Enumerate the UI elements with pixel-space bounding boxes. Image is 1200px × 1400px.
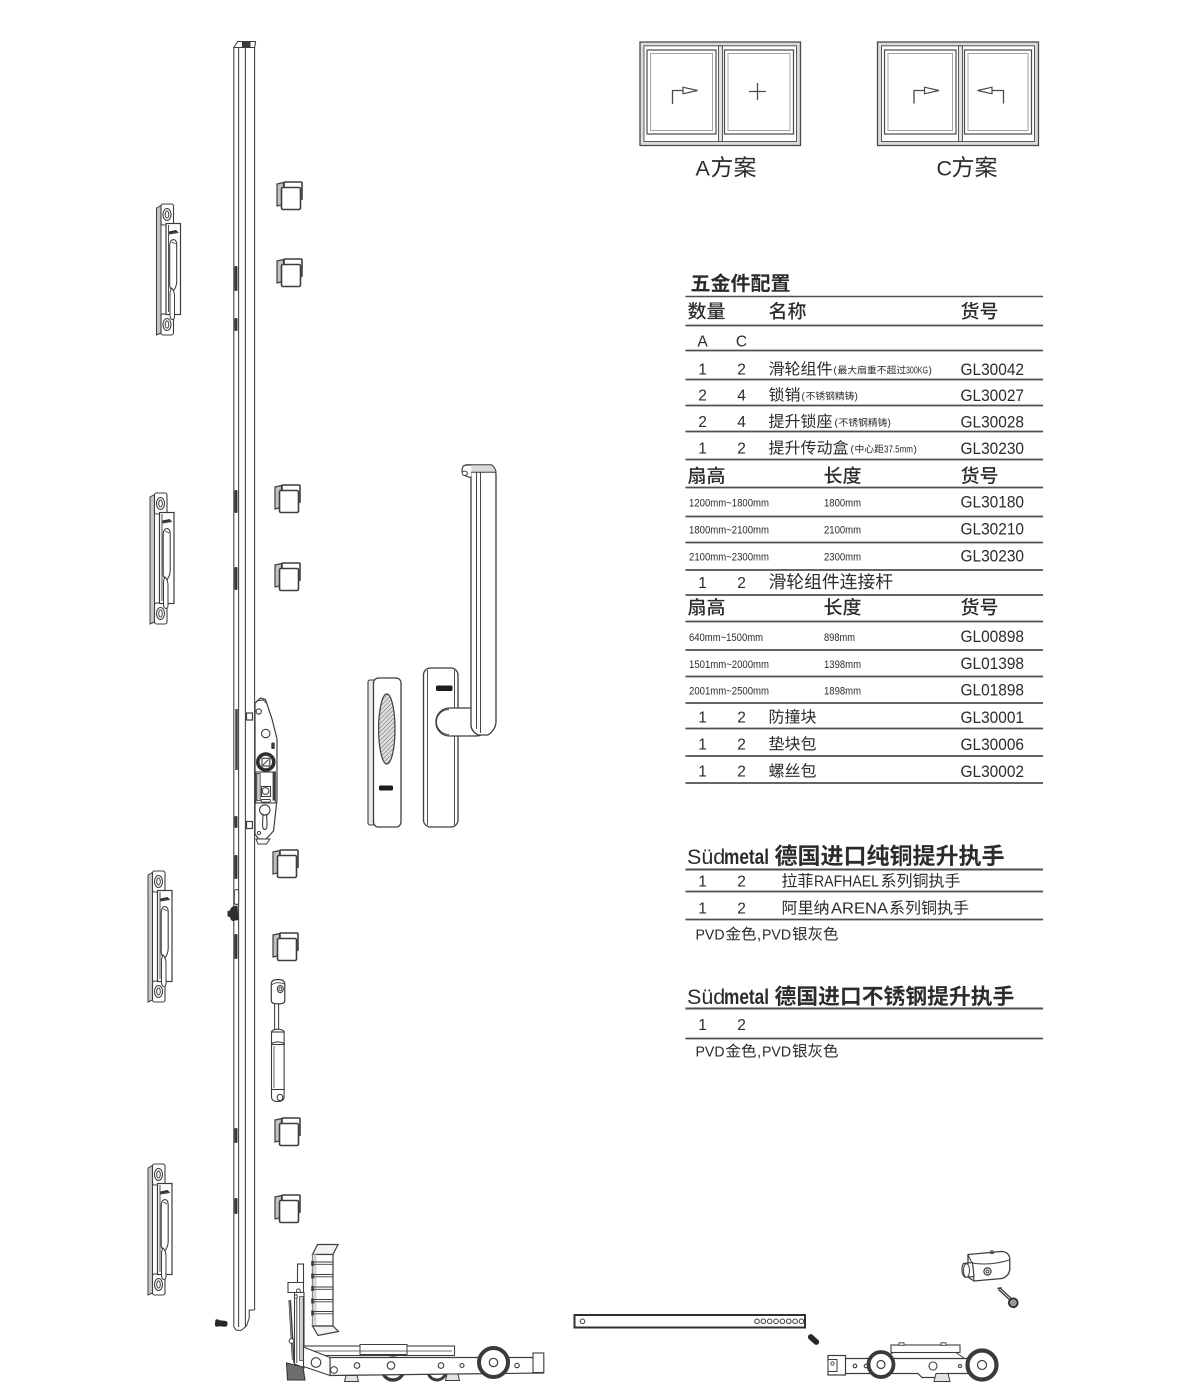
svg-text:1: 1 bbox=[698, 362, 707, 379]
svg-text:): ) bbox=[855, 392, 858, 403]
svg-text:4: 4 bbox=[737, 414, 746, 431]
svg-text:PVD: PVD bbox=[762, 1044, 791, 1061]
svg-text:Süd: Süd bbox=[687, 985, 725, 1009]
svg-text:): ) bbox=[888, 418, 891, 429]
svg-text:1: 1 bbox=[698, 441, 707, 458]
svg-text:2300mm: 2300mm bbox=[824, 552, 861, 564]
svg-text:): ) bbox=[929, 366, 932, 377]
svg-text:2: 2 bbox=[698, 388, 707, 405]
svg-text:1: 1 bbox=[698, 575, 707, 592]
svg-text:C: C bbox=[736, 334, 747, 351]
svg-text:2: 2 bbox=[737, 362, 746, 379]
svg-text:300KG: 300KG bbox=[906, 366, 928, 377]
svg-text:2: 2 bbox=[737, 710, 746, 727]
svg-text:1800mm~2100mm: 1800mm~2100mm bbox=[689, 525, 769, 537]
svg-text:1200mm~1800mm: 1200mm~1800mm bbox=[689, 498, 769, 510]
svg-text:2100mm~2300mm: 2100mm~2300mm bbox=[689, 552, 769, 564]
svg-text:,: , bbox=[757, 927, 761, 944]
svg-text:1800mm: 1800mm bbox=[824, 498, 861, 510]
svg-text:RAFHAEL: RAFHAEL bbox=[814, 874, 879, 891]
svg-text:1398mm: 1398mm bbox=[824, 659, 861, 671]
svg-text:1: 1 bbox=[698, 737, 707, 754]
svg-text:metal: metal bbox=[724, 845, 769, 869]
svg-text:GL00898: GL00898 bbox=[961, 628, 1025, 646]
svg-text:GL30180: GL30180 bbox=[961, 494, 1025, 512]
svg-text:4: 4 bbox=[737, 388, 746, 405]
svg-text:640mm~1500mm: 640mm~1500mm bbox=[689, 632, 763, 644]
svg-text:GL01898: GL01898 bbox=[961, 682, 1025, 700]
svg-text:C: C bbox=[937, 157, 953, 181]
svg-text:(: ( bbox=[834, 366, 838, 377]
svg-text:1501mm~2000mm: 1501mm~2000mm bbox=[689, 659, 769, 671]
svg-text:): ) bbox=[914, 445, 917, 456]
svg-text:1: 1 bbox=[698, 710, 707, 727]
svg-text:2: 2 bbox=[737, 441, 746, 458]
svg-text:metal: metal bbox=[724, 985, 769, 1009]
svg-text:1: 1 bbox=[698, 901, 707, 918]
svg-text:GL30028: GL30028 bbox=[961, 414, 1025, 432]
svg-text:(: ( bbox=[835, 418, 839, 429]
svg-text:2001mm~2500mm: 2001mm~2500mm bbox=[689, 686, 769, 698]
svg-text:A: A bbox=[697, 334, 708, 351]
svg-text:,: , bbox=[757, 1044, 761, 1061]
svg-text:37.5mm: 37.5mm bbox=[884, 445, 913, 456]
svg-text:GL30006: GL30006 bbox=[961, 736, 1025, 754]
svg-text:2100mm: 2100mm bbox=[824, 525, 861, 537]
svg-text:1: 1 bbox=[698, 1017, 707, 1034]
svg-text:(: ( bbox=[851, 445, 855, 456]
svg-text:Süd: Süd bbox=[687, 845, 725, 869]
svg-text:1: 1 bbox=[698, 764, 707, 781]
svg-text:2: 2 bbox=[737, 1017, 746, 1034]
svg-text:PVD: PVD bbox=[762, 927, 791, 944]
svg-text:2: 2 bbox=[737, 575, 746, 592]
svg-text:PVD: PVD bbox=[696, 927, 725, 944]
svg-text:GL30001: GL30001 bbox=[961, 709, 1025, 727]
svg-text:ARENA: ARENA bbox=[831, 901, 889, 918]
svg-text:GL30042: GL30042 bbox=[961, 361, 1025, 379]
svg-text:PVD: PVD bbox=[696, 1044, 725, 1061]
svg-text:(: ( bbox=[802, 392, 806, 403]
svg-text:898mm: 898mm bbox=[824, 632, 855, 644]
svg-text:2: 2 bbox=[737, 764, 746, 781]
svg-text:2: 2 bbox=[737, 737, 746, 754]
svg-text:1: 1 bbox=[698, 874, 707, 891]
svg-text:2: 2 bbox=[737, 874, 746, 891]
svg-text:2: 2 bbox=[698, 414, 707, 431]
svg-text:1898mm: 1898mm bbox=[824, 686, 861, 698]
svg-text:GL30210: GL30210 bbox=[961, 521, 1025, 539]
svg-text:GL30230: GL30230 bbox=[961, 548, 1025, 566]
svg-text:2: 2 bbox=[737, 901, 746, 918]
svg-text:GL30027: GL30027 bbox=[961, 387, 1025, 405]
svg-text:GL30230: GL30230 bbox=[961, 440, 1025, 458]
svg-text:A: A bbox=[696, 157, 711, 181]
svg-text:GL30002: GL30002 bbox=[961, 763, 1025, 781]
svg-text:GL01398: GL01398 bbox=[961, 655, 1025, 673]
